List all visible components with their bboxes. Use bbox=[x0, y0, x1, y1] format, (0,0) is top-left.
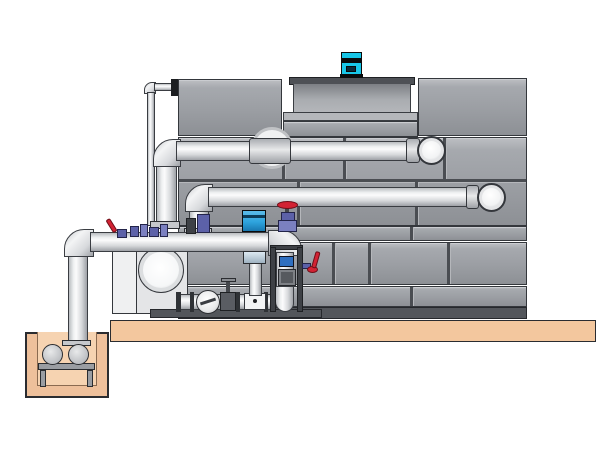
cooling-tower-diagram bbox=[0, 0, 600, 450]
skid-side-panel bbox=[112, 251, 138, 314]
tower-top-right-panel bbox=[418, 78, 527, 136]
small-valve-body bbox=[117, 229, 127, 238]
red-valve-body bbox=[278, 220, 297, 232]
manifold-flange-2 bbox=[190, 292, 194, 312]
frame-mid-panel bbox=[278, 269, 296, 286]
sump-pump-body-right bbox=[68, 344, 89, 365]
tower-recess-band bbox=[283, 121, 418, 137]
concrete-slab bbox=[110, 320, 596, 342]
tower-band-b-seam3 bbox=[447, 243, 450, 284]
frame-blue-fitting bbox=[279, 256, 294, 267]
pump-stand-bar bbox=[38, 363, 95, 370]
fan-shroud bbox=[293, 84, 411, 113]
sump-discharge-riser bbox=[68, 255, 88, 346]
upper-pipe-elbow-face bbox=[417, 136, 446, 165]
vertical-pump-motor-band bbox=[243, 215, 265, 218]
pump-base-dot bbox=[253, 299, 257, 303]
vertical-pump-motor bbox=[242, 210, 266, 232]
frame-bottom-elbow bbox=[275, 286, 294, 312]
return-pipe-elbow-face bbox=[477, 183, 506, 212]
tower-recess-ledge bbox=[283, 112, 418, 121]
tower-band-b-seam2 bbox=[368, 243, 371, 284]
red-valve-handwheel bbox=[277, 201, 298, 209]
fan-motor-base bbox=[340, 74, 363, 78]
riser-pipe bbox=[156, 162, 177, 228]
frame-post-right bbox=[297, 247, 303, 312]
pump-stand-leg-left bbox=[40, 370, 46, 387]
gate-valve bbox=[220, 292, 236, 311]
volute-pump-face bbox=[138, 247, 184, 293]
upper-pipe bbox=[176, 141, 410, 161]
vertical-pump-column bbox=[249, 263, 262, 296]
feed-line-flange bbox=[171, 79, 178, 96]
return-pipe bbox=[208, 187, 470, 207]
tower-band-c-seam bbox=[410, 287, 413, 306]
tower-band-a-seam bbox=[410, 227, 413, 240]
fan-motor-window bbox=[346, 66, 356, 72]
manifold-flange-1 bbox=[176, 292, 181, 312]
drop-leg-fitting-2 bbox=[197, 214, 210, 233]
dosing-fitting-4 bbox=[160, 224, 168, 237]
manifold-flange-3 bbox=[236, 292, 240, 312]
sump-pump-body-left bbox=[42, 344, 63, 365]
tower-mid-seam bbox=[179, 179, 526, 182]
pump-stand-leg-right bbox=[87, 370, 93, 387]
vertical-pump-bell bbox=[243, 251, 266, 264]
tower-band-b-seam1 bbox=[332, 243, 335, 284]
upper-pipe-sleeve bbox=[249, 138, 291, 164]
fan-motor-band bbox=[342, 58, 361, 63]
drop-leg-fitting-1 bbox=[186, 218, 196, 234]
dosing-fitting-1 bbox=[130, 226, 139, 237]
dosing-fitting-2 bbox=[140, 224, 148, 237]
frame-post-left bbox=[270, 247, 276, 312]
dosing-fitting-3 bbox=[149, 227, 159, 237]
